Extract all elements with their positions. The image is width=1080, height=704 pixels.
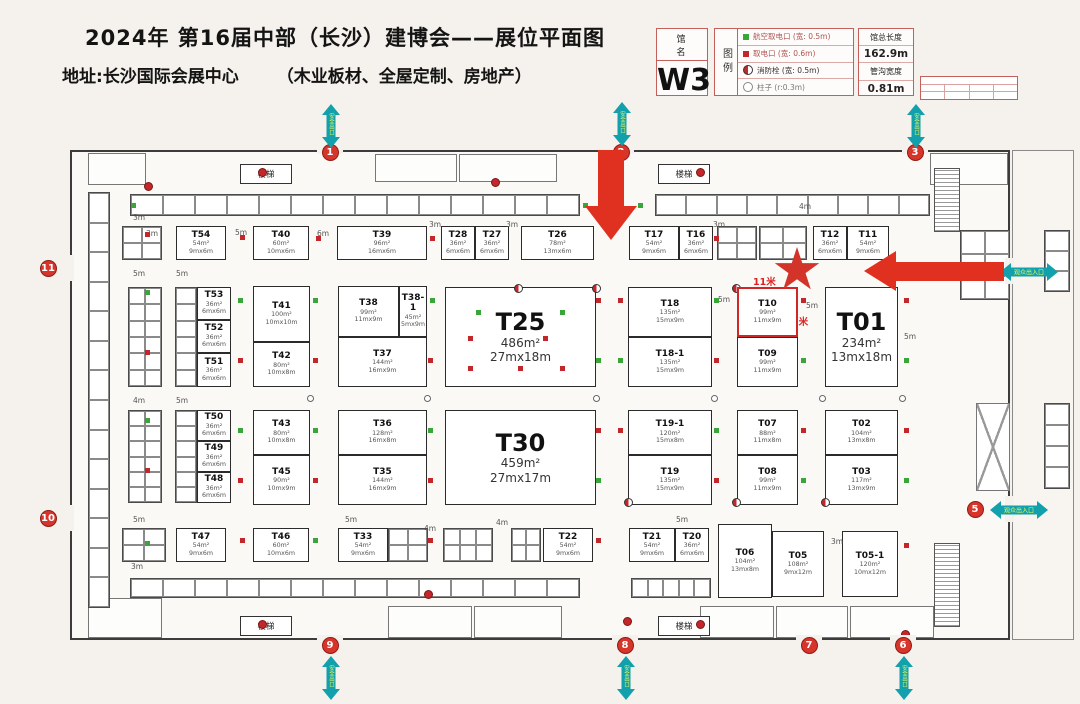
power-outlet-icon <box>560 366 565 371</box>
booth-area: 96m² <box>374 240 391 248</box>
booth-id: T19-1 <box>656 420 685 430</box>
small-booth-cell <box>163 579 195 597</box>
small-booth-cell <box>483 195 515 215</box>
small-booth-cell <box>460 529 476 545</box>
booth-T46[interactable]: T4660m²10mx6m <box>253 528 309 562</box>
booth-size: 16mx9m <box>368 367 396 375</box>
small-booth-cell <box>476 545 492 561</box>
column-icon <box>424 395 431 402</box>
small-booth-cell <box>145 441 161 456</box>
booth-T09[interactable]: T0999m²11mx9m <box>737 337 798 387</box>
booth-T45[interactable]: T4590m²10mx9m <box>253 455 310 505</box>
booth-area: 78m² <box>549 240 566 248</box>
red-arrow-down-head <box>585 206 637 240</box>
air-power-outlet-icon <box>313 538 318 543</box>
svg-text:安全出口: 安全出口 <box>328 664 335 689</box>
booth-size: 6mx6m <box>202 341 226 349</box>
booth-area: 36m² <box>684 542 701 550</box>
booth-id: T33 <box>354 533 373 543</box>
booth-area: 54m² <box>644 542 661 550</box>
booth-id: T37 <box>373 350 392 360</box>
booth-area: 80m² <box>273 362 290 370</box>
dimension-label: 4m <box>496 518 508 527</box>
small-booth-cell <box>142 243 161 259</box>
booth-id: T46 <box>272 533 291 543</box>
booth-T49[interactable]: T4936m²6mx6m <box>197 441 231 472</box>
power-outlet-icon <box>240 538 245 543</box>
booth-area: 54m² <box>860 240 877 248</box>
air-power-outlet-icon <box>131 203 136 208</box>
booth-id: T38 <box>359 299 378 309</box>
booth-id: T54 <box>192 231 211 241</box>
booth-area: 135m² <box>660 477 681 485</box>
booth-area: 486m² <box>501 336 540 350</box>
air-power-outlet-icon <box>801 478 806 483</box>
booth-area: 36m² <box>450 240 467 248</box>
small-booth-cell <box>460 545 476 561</box>
booth-T19-1[interactable]: T19-1120m²15mx8m <box>628 410 712 455</box>
booth-size: 9mx6m <box>189 248 213 256</box>
gate-number-5: 5 <box>967 501 984 518</box>
booth-size: 9mx6m <box>189 550 213 558</box>
small-booth-cell <box>868 195 898 215</box>
small-booth-cell <box>1045 467 1069 488</box>
air-power-outlet-icon <box>430 298 435 303</box>
booth-id: T17 <box>645 231 664 241</box>
booth-id: T50 <box>205 413 224 423</box>
booth-area: 128m² <box>372 430 393 438</box>
booth-id: T48 <box>205 475 224 485</box>
fire-hydrant-icon <box>732 498 741 507</box>
small-booth-cell <box>483 579 515 597</box>
small-booth-cell <box>1045 231 1069 251</box>
air-power-outlet-icon <box>596 358 601 363</box>
booth-id: T41 <box>272 302 291 312</box>
booth-area: 234m² <box>842 336 881 350</box>
small-booth-grid <box>175 287 197 387</box>
small-booth-cell <box>717 195 747 215</box>
booth-id: T28 <box>449 231 468 241</box>
power-outlet-icon <box>596 298 601 303</box>
booth-size: 10mx8m <box>267 437 295 445</box>
fire-hydrant-icon <box>514 284 523 293</box>
power-outlet-icon <box>313 358 318 363</box>
small-booth-grid <box>128 410 162 503</box>
small-booth-grid <box>130 194 580 216</box>
perimeter-structure <box>459 154 557 182</box>
wall-dot-icon <box>424 590 433 599</box>
small-booth-cell <box>227 195 259 215</box>
hall-plan: 楼梯楼梯楼梯楼梯T5454m²9mx6mT4060m²10mx6mT3996m²… <box>0 0 1080 702</box>
air-power-outlet-icon <box>904 478 909 483</box>
wall-dot-icon <box>144 182 153 191</box>
booth-size: 16mx9m <box>368 485 396 493</box>
dimension-label: 3m <box>506 220 518 229</box>
booth-area: 144m² <box>372 477 393 485</box>
booth-area: 36m² <box>206 301 223 309</box>
booth-T35[interactable]: T35144m²16mx9m <box>338 455 427 505</box>
small-booth-cell <box>123 529 144 545</box>
booth-id: T26 <box>548 231 567 241</box>
dimension-label: 3m <box>131 562 143 571</box>
small-booth-cell <box>718 227 737 243</box>
booth-T50[interactable]: T5036m²6mx6m <box>197 410 231 441</box>
booth-area: 99m² <box>759 477 776 485</box>
booth-area: 100m² <box>271 311 292 319</box>
perimeter-structure <box>88 153 146 185</box>
small-booth-cell <box>131 195 163 215</box>
air-power-outlet-icon <box>145 418 150 423</box>
small-booth-cell <box>291 579 323 597</box>
small-booth-cell <box>737 243 756 259</box>
booth-T01[interactable]: T01234m²13mx18m <box>825 287 898 387</box>
dimension-label: 3m <box>831 537 843 546</box>
booth-size: 16mx6m <box>368 248 396 256</box>
small-booth-cell <box>89 400 109 430</box>
booth-T06[interactable]: T06104m²13mx8m <box>718 524 772 598</box>
booth-T05-1[interactable]: T05-1120m²10mx12m <box>842 531 898 597</box>
booth-T02[interactable]: T02104m²13mx8m <box>825 410 898 455</box>
booth-area: 60m² <box>273 542 290 550</box>
booth-size: 6mx6m <box>480 248 504 256</box>
small-booth-cell <box>163 195 195 215</box>
red-arrow-left-head <box>864 251 896 291</box>
booth-area: 120m² <box>660 430 681 438</box>
small-booth-cell <box>89 518 109 548</box>
small-booth-cell <box>89 430 109 460</box>
small-booth-cell <box>355 195 387 215</box>
small-booth-cell <box>89 459 109 489</box>
booth-id: T08 <box>758 468 777 478</box>
booth-T22[interactable]: T2254m²9mx6m <box>543 528 593 562</box>
booth-area: 135m² <box>660 309 681 317</box>
small-booth-cell <box>1045 446 1069 467</box>
booth-id: T01 <box>837 309 887 335</box>
small-booth-cell <box>89 193 109 223</box>
small-booth-cell <box>176 426 196 441</box>
small-booth-cell <box>176 487 196 502</box>
small-booth-cell <box>89 341 109 371</box>
small-booth-cell <box>663 579 679 597</box>
power-outlet-icon <box>904 428 909 433</box>
booth-size: 6mx6m <box>202 430 226 438</box>
small-booth-cell <box>323 579 355 597</box>
fire-hydrant-icon <box>624 498 633 507</box>
small-booth-cell <box>737 227 756 243</box>
small-booth-cell <box>129 457 145 472</box>
booth-id: T21 <box>643 533 662 543</box>
entrance-arrow-horizontal: 观众出入口 <box>1000 262 1058 286</box>
gate-number-8: 8 <box>617 637 634 654</box>
power-outlet-icon <box>316 236 321 241</box>
dimension-label: 3m <box>133 213 145 222</box>
booth-T41[interactable]: T41100m²10mx10m <box>253 286 310 342</box>
booth-T54[interactable]: T5454m²9mx6m <box>176 226 226 260</box>
small-booth-cell <box>89 548 109 578</box>
power-outlet-icon <box>714 358 719 363</box>
small-booth-cell <box>476 529 492 545</box>
booth-T16[interactable]: T1636m²6mx6m <box>679 226 713 260</box>
booth-id: T30 <box>496 430 546 456</box>
booth-id: T11 <box>859 231 878 241</box>
small-booth-grid <box>175 410 197 503</box>
booth-id: T09 <box>758 350 777 360</box>
booth-T47[interactable]: T4754m²9mx6m <box>176 528 226 562</box>
booth-area: 36m² <box>206 367 223 375</box>
small-booth-cell <box>176 441 196 456</box>
small-booth-cell <box>176 472 196 487</box>
power-outlet-icon <box>468 366 473 371</box>
perimeter-structure <box>1012 150 1074 640</box>
booth-T43[interactable]: T4380m²10mx8m <box>253 410 310 455</box>
fire-hydrant-icon <box>821 498 830 507</box>
booth-area: 45m² <box>405 314 422 322</box>
small-booth-grid <box>88 192 110 608</box>
exit-arrow-vertical: 安全出口 <box>612 102 632 150</box>
gate-number-11: 11 <box>40 260 57 277</box>
air-power-outlet-icon <box>238 428 243 433</box>
small-booth-cell <box>89 489 109 519</box>
booth-area: 36m² <box>484 240 501 248</box>
svg-text:安全出口: 安全出口 <box>901 664 908 689</box>
small-booth-cell <box>176 457 196 472</box>
exit-arrow-vertical: 安全出口 <box>894 656 914 704</box>
power-outlet-icon <box>238 358 243 363</box>
red-arrow-left-shaft <box>896 262 1004 281</box>
booth-size: 16mx8m <box>368 437 396 445</box>
small-booth-cell <box>145 426 161 441</box>
small-booth-cell <box>259 579 291 597</box>
gate-number-7: 7 <box>801 637 818 654</box>
booth-id: T40 <box>272 231 291 241</box>
power-outlet-icon <box>428 538 433 543</box>
small-booth-cell <box>145 321 161 337</box>
booth-size: 13mx9m <box>847 485 875 493</box>
booth-id: T06 <box>736 549 755 559</box>
air-power-outlet-icon <box>238 298 243 303</box>
floor-plan-page: 2024年 第16届中部（长沙）建博会——展位平面图 地址:长沙国际会展中心 （… <box>0 0 1080 702</box>
small-booth-cell <box>129 337 145 353</box>
power-outlet-icon <box>618 298 623 303</box>
small-booth-cell <box>144 545 165 561</box>
booth-T28[interactable]: T2836m²6mx6m <box>441 226 475 260</box>
booth-area: 36m² <box>206 334 223 342</box>
booth-size: 11mx9m <box>753 367 781 375</box>
booth-area: 99m² <box>759 359 776 367</box>
small-booth-cell <box>656 195 686 215</box>
booth-area: 54m² <box>646 240 663 248</box>
booth-size: 15mx9m <box>656 367 684 375</box>
small-booth-cell <box>389 529 408 545</box>
small-booth-cell <box>131 579 163 597</box>
small-booth-cell <box>1045 404 1069 425</box>
booth-id: T47 <box>192 533 211 543</box>
booth-T26[interactable]: T2678m²13mx6m <box>521 226 594 260</box>
booth-size: 13mx18m <box>831 350 892 364</box>
power-outlet-icon <box>145 232 150 237</box>
perimeter-structure <box>375 154 457 182</box>
booth-id: T05 <box>789 552 808 562</box>
power-outlet-icon <box>145 350 150 355</box>
dimension-label: 5m <box>718 295 730 304</box>
small-booth-cell <box>176 411 196 426</box>
booth-T52[interactable]: T5236m²6mx6m <box>197 320 231 353</box>
air-power-outlet-icon <box>714 428 719 433</box>
booth-id: T53 <box>205 291 224 301</box>
small-booth-cell <box>838 195 868 215</box>
booth-T18-1[interactable]: T18-1135m²15mx9m <box>628 337 712 387</box>
power-outlet-icon <box>596 428 601 433</box>
power-outlet-icon <box>714 236 719 241</box>
svg-text:安全出口: 安全出口 <box>619 110 626 135</box>
booth-area: 80m² <box>273 430 290 438</box>
booth-area: 60m² <box>273 240 290 248</box>
small-booth-cell <box>176 353 196 369</box>
highlight-star-icon: ★ <box>771 240 823 298</box>
small-booth-cell <box>145 304 161 320</box>
power-outlet-icon <box>618 428 623 433</box>
wall-dot-icon <box>623 617 632 626</box>
booth-T36[interactable]: T36128m²16mx8m <box>338 410 427 455</box>
gate-number-9: 9 <box>322 637 339 654</box>
booth-size: 6mx6m <box>202 461 226 469</box>
perimeter-structure <box>850 606 934 638</box>
small-booth-cell <box>444 545 460 561</box>
booth-T18[interactable]: T18135m²15mx9m <box>628 287 712 337</box>
booth-area: 144m² <box>372 359 393 367</box>
dimension-label: 3m <box>429 220 441 229</box>
booth-size: 6mx6m <box>446 248 470 256</box>
booth-T05[interactable]: T05108m²9mx12m <box>772 531 824 597</box>
small-booth-cell <box>89 223 109 253</box>
booth-size: 15mx9m <box>656 485 684 493</box>
column-icon <box>899 395 906 402</box>
door-opening <box>65 505 74 531</box>
small-booth-cell <box>632 579 648 597</box>
booth-id: T12 <box>821 231 840 241</box>
booth-area: 99m² <box>360 309 377 317</box>
booth-T30[interactable]: T30459m²27mx17m <box>445 410 596 505</box>
small-booth-cell <box>145 487 161 502</box>
small-booth-cell <box>89 311 109 341</box>
booth-id: T05-1 <box>856 552 885 562</box>
svg-text:安全出口: 安全出口 <box>328 112 335 137</box>
wall-dot-icon <box>696 168 705 177</box>
svg-text:安全出口: 安全出口 <box>913 112 920 137</box>
wall-dot-icon <box>491 178 500 187</box>
dimension-label: 5m <box>345 515 357 524</box>
booth-T53[interactable]: T5336m²6mx6m <box>197 287 231 320</box>
booth-T42[interactable]: T4280m²10mx8m <box>253 342 310 387</box>
exit-arrow-vertical: 安全出口 <box>616 656 636 704</box>
booth-id: T27 <box>483 231 502 241</box>
dimension-label: 5m <box>133 269 145 278</box>
booth-area: 90m² <box>273 477 290 485</box>
booth-T08[interactable]: T0899m²11mx9m <box>737 455 798 505</box>
booth-size: 6mx6m <box>684 248 708 256</box>
wall-dot-icon <box>258 168 267 177</box>
booth-area: 54m² <box>355 542 372 550</box>
dimension-label: 5m <box>133 515 145 524</box>
booth-size: 10mx12m <box>854 569 886 577</box>
exit-arrow-vertical: 安全出口 <box>321 104 341 152</box>
booth-id: T19 <box>661 468 680 478</box>
small-booth-cell <box>694 579 710 597</box>
small-booth-cell <box>176 321 196 337</box>
small-booth-cell <box>176 288 196 304</box>
small-booth-cell <box>718 243 737 259</box>
booth-T40[interactable]: T4060m²10mx6m <box>253 226 309 260</box>
booth-size: 27mx17m <box>490 471 551 485</box>
booth-size: 15mx9m <box>656 317 684 325</box>
booth-T38-1[interactable]: T38-145m²5mx9m <box>399 286 427 337</box>
booth-T51[interactable]: T5136m²6mx6m <box>197 353 231 387</box>
booth-T39[interactable]: T3996m²16mx6m <box>337 226 427 260</box>
air-power-outlet-icon <box>638 203 643 208</box>
booth-id: T18 <box>661 300 680 310</box>
small-booth-cell <box>176 304 196 320</box>
dimension-label: 4m <box>133 396 145 405</box>
small-booth-cell <box>259 195 291 215</box>
booth-id: T45 <box>272 468 291 478</box>
booth-size: 27mx18m <box>490 350 551 364</box>
booth-id: T03 <box>852 468 871 478</box>
small-booth-cell <box>89 282 109 312</box>
perimeter-structure <box>388 606 472 638</box>
small-booth-cell <box>129 353 145 369</box>
small-booth-cell <box>408 545 427 561</box>
booth-id: T20 <box>683 533 702 543</box>
air-power-outlet-icon <box>313 298 318 303</box>
booth-area: 36m² <box>206 485 223 493</box>
booth-id: T22 <box>559 533 578 543</box>
dimension-label: 5m <box>176 269 188 278</box>
booth-area: 36m² <box>206 454 223 462</box>
small-booth-cell <box>547 579 579 597</box>
booth-T33[interactable]: T3354m²9mx6m <box>338 528 388 562</box>
booth-size: 10mx9m <box>267 485 295 493</box>
booth-T20[interactable]: T2036m²6mx6m <box>675 528 709 562</box>
dimension-label: 5m <box>904 332 916 341</box>
booth-T48[interactable]: T4836m²6mx6m <box>197 472 231 503</box>
exit-arrow-vertical: 安全出口 <box>321 656 341 704</box>
power-outlet-icon <box>801 428 806 433</box>
booth-size: 10mx10m <box>265 319 297 327</box>
booth-T07[interactable]: T0788m²11mx8m <box>737 410 798 455</box>
power-outlet-icon <box>596 538 601 543</box>
power-outlet-icon <box>428 358 433 363</box>
booth-T21[interactable]: T2154m²9mx6m <box>629 528 675 562</box>
booth-size: 6mx6m <box>202 375 226 383</box>
small-booth-cell <box>515 195 547 215</box>
booth-size: 9mx6m <box>351 550 375 558</box>
gate-number-6: 6 <box>895 637 912 654</box>
wall-dot-icon <box>696 620 705 629</box>
booth-T38[interactable]: T3899m²11mx9m <box>338 286 399 337</box>
booth-area: 117m² <box>851 477 872 485</box>
booth-T03[interactable]: T03117m²13mx9m <box>825 455 898 505</box>
booth-T19[interactable]: T19135m²15mx9m <box>628 455 712 505</box>
column-icon <box>593 395 600 402</box>
booth-size: 13mx8m <box>847 437 875 445</box>
booth-T37[interactable]: T37144m²16mx9m <box>338 337 427 387</box>
booth-size: 11mx8m <box>753 437 781 445</box>
small-booth-cell <box>129 472 145 487</box>
booth-size: 11mx9m <box>753 485 781 493</box>
small-booth-cell <box>129 487 145 502</box>
booth-T27[interactable]: T2736m²6mx6m <box>475 226 509 260</box>
perimeter-structure <box>776 606 848 638</box>
